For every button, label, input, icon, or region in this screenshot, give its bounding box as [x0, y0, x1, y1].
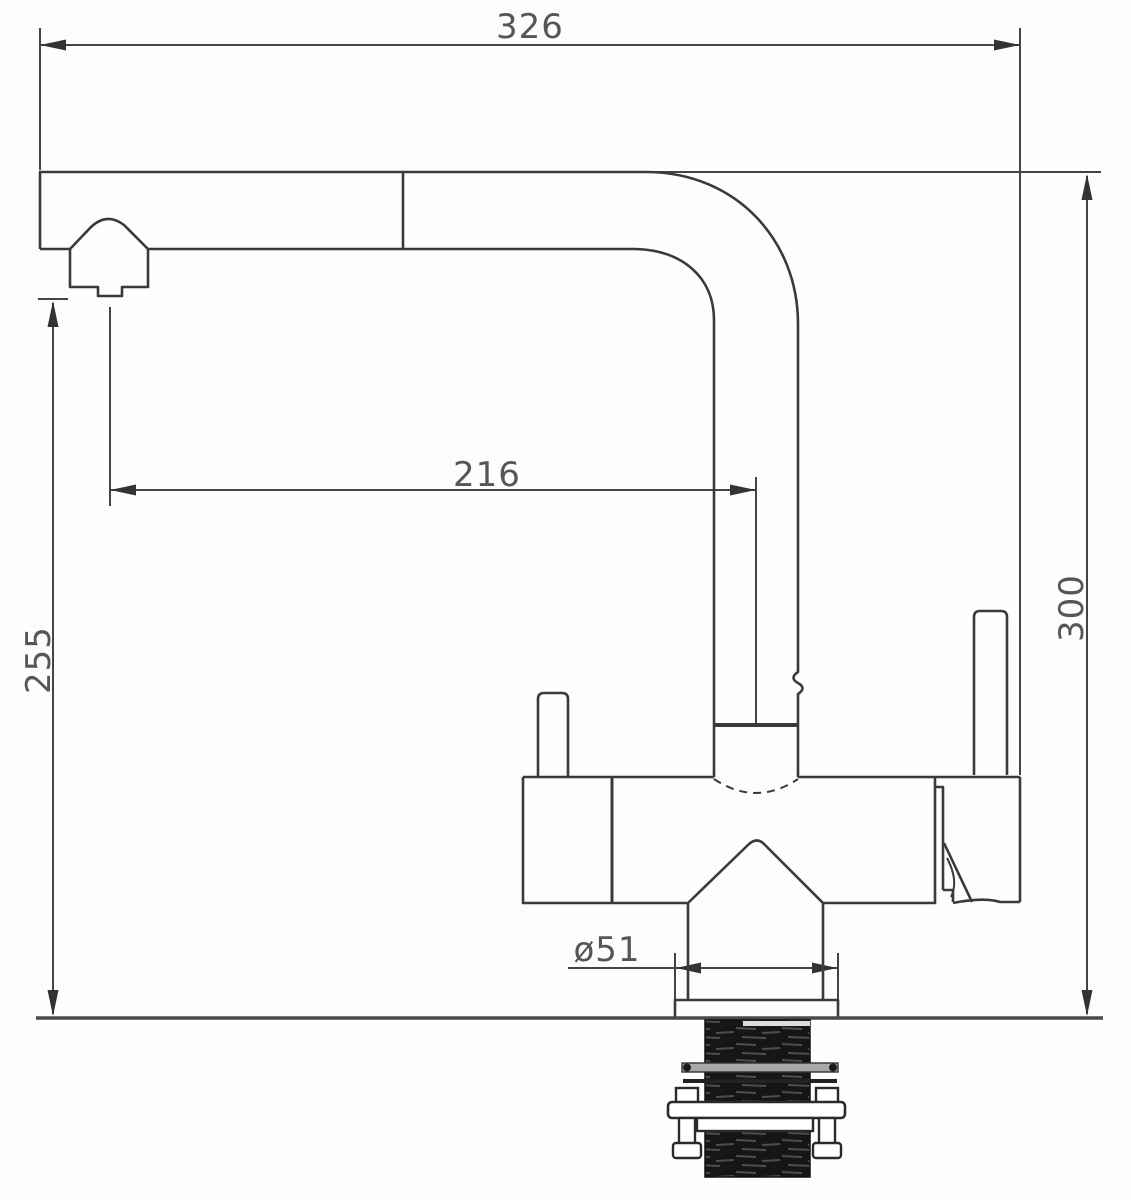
bolt-shaft-left: [679, 1118, 695, 1144]
dim-label-base-diameter: ø51: [573, 930, 640, 970]
dim-label-outlet-height: 255: [19, 626, 59, 694]
arrowhead-down-icon: [1082, 990, 1093, 1016]
arrowhead-right-icon: [994, 40, 1020, 51]
drawing-page: 326 216 255 300 ø51: [0, 0, 1131, 1200]
dim-label-overall-width: 326: [496, 7, 564, 47]
dimension-lines: [38, 28, 1101, 1016]
left-lever: [538, 693, 568, 777]
arrowhead-left-icon: [40, 40, 66, 51]
faucet-outline: [40, 172, 1020, 1017]
bolt-shaft-right: [819, 1118, 835, 1144]
hidden-arc: [714, 779, 798, 793]
arrowhead-up-icon: [1082, 174, 1093, 200]
body-chevron: [688, 841, 823, 904]
base-neck: [688, 903, 823, 1000]
bracket-step: [697, 1118, 813, 1131]
dim-label-spout-reach: 216: [453, 455, 521, 495]
arrowhead-left-icon: [110, 485, 136, 496]
threaded-shank: [705, 1020, 810, 1177]
mixer-body: [523, 777, 1020, 903]
right-lever: [974, 611, 1007, 775]
right-valve-housing: [935, 777, 1020, 903]
spout-outer: [40, 172, 803, 777]
mounting-stud: [682, 1063, 838, 1072]
bolt-foot-right: [813, 1143, 841, 1158]
arrowhead-right-icon: [812, 963, 837, 974]
mounting-bracket: [668, 1102, 845, 1118]
arrowhead-down-icon: [48, 990, 59, 1016]
arrowhead-up-icon: [48, 301, 59, 327]
dimension-spout-reach: [110, 307, 756, 723]
arrowhead-right-icon: [730, 485, 756, 496]
dim-label-overall-height: 300: [1052, 574, 1092, 642]
under-counter-assembly: [668, 1020, 845, 1177]
dimension-overall-width: [40, 28, 1020, 775]
spout-inner: [148, 249, 714, 777]
technical-drawing-canvas: 326 216 255 300 ø51: [0, 0, 1131, 1200]
base-escutcheon: [675, 1000, 838, 1017]
dimension-overall-height: [652, 172, 1101, 1016]
shank-highlight: [743, 1021, 810, 1026]
bolt-foot-left: [673, 1143, 701, 1158]
pull-out-spray-head: [70, 219, 148, 296]
